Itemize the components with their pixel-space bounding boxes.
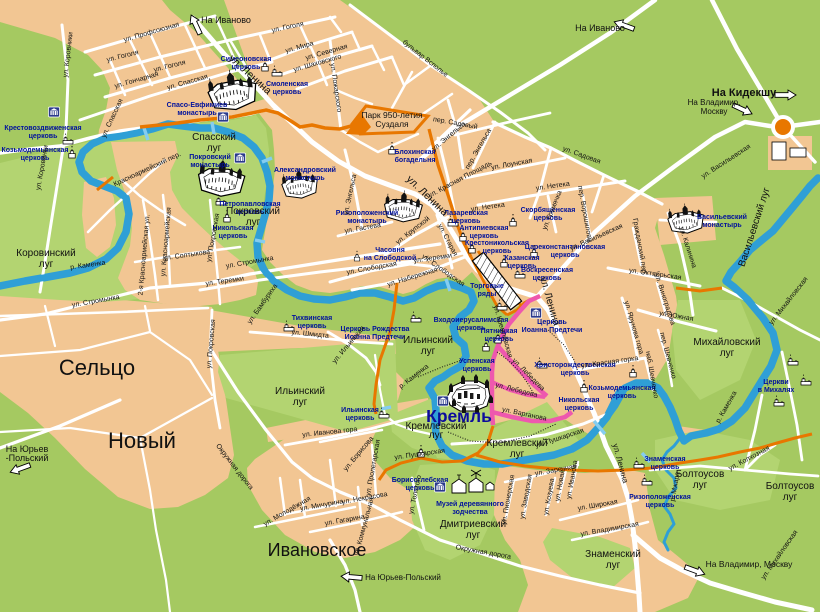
svg-text:Спасо-Евфимиев: Спасо-Евфимиев [167,102,228,109]
svg-text:церковь: церковь [463,366,492,373]
svg-text:Никольская: Никольская [559,397,600,404]
svg-text:монастырь: монастырь [702,222,742,229]
svg-text:луг: луг [429,430,444,441]
svg-text:луг: луг [466,530,481,541]
svg-text:луг: луг [783,492,798,503]
svg-text:луг: луг [246,217,261,228]
svg-text:луг: луг [720,348,735,359]
svg-text:церковь: церковь [219,233,248,240]
svg-text:луг: луг [207,143,222,154]
svg-text:Козьмодемьянская: Козьмодемьянская [589,385,656,392]
svg-text:Покровский: Покровский [226,206,280,217]
svg-text:Крестоникольская: Крестоникольская [465,240,529,247]
svg-text:церковь: церковь [470,233,499,240]
svg-text:Музей деревянного: Музей деревянного [436,500,504,508]
svg-text:луг: луг [693,480,708,491]
svg-text:Москву: Москву [701,107,728,116]
svg-text:монастырь: монастырь [177,110,217,117]
svg-text:Ильинский: Ильинский [403,335,453,346]
svg-text:На Владимир,: На Владимир, [688,98,741,107]
svg-text:Воскресенская: Воскресенская [521,267,573,274]
svg-text:церковь: церковь [298,323,327,330]
svg-text:церковь: церковь [452,218,481,225]
svg-text:Васильевский: Васильевский [697,213,747,221]
svg-text:монастырь: монастырь [285,175,325,182]
svg-text:Знаменский: Знаменский [585,549,641,560]
svg-text:Михайловский: Михайловский [693,337,760,348]
svg-text:церковь: церковь [551,252,580,259]
svg-text:Часовня: Часовня [375,247,405,254]
svg-text:Антипиевская: Антипиевская [460,225,509,232]
svg-text:Суздаля: Суздаля [375,119,409,129]
svg-text:Козьмодемьянская: Козьмодемьянская [2,147,69,154]
svg-text:Болтоусов: Болтоусов [676,469,725,480]
svg-text:церковь: церковь [561,370,590,377]
svg-text:луг: луг [39,259,54,270]
svg-text:На Кидекшу: На Кидекшу [712,87,777,99]
svg-text:Ильинская: Ильинская [341,407,379,414]
svg-text:Кремлевский: Кремлевский [487,438,548,449]
svg-text:Церкви: Церкви [763,379,788,386]
svg-text:Ивановское: Ивановское [268,540,367,560]
svg-text:Покровский: Покровский [189,153,231,161]
svg-text:Тихвинская: Тихвинская [292,315,332,322]
svg-text:Крестовоздвиженская: Крестовоздвиженская [4,125,81,132]
svg-text:Ризоположенская: Ризоположенская [629,494,691,501]
svg-text:луг: луг [606,560,621,571]
svg-text:На Юрьев-Польский: На Юрьев-Польский [365,573,441,582]
svg-text:Торговые: Торговые [470,283,504,290]
svg-text:На Владимир, Москву: На Владимир, Москву [706,559,794,569]
svg-text:Сельцо: Сельцо [59,355,135,380]
svg-text:Дмитриевский: Дмитриевский [440,519,506,530]
svg-text:церковь: церковь [565,405,594,412]
svg-text:монастырь: монастырь [190,162,230,169]
svg-text:На Иваново: На Иваново [575,23,625,33]
svg-text:Иоанна Предтечи: Иоанна Предтечи [522,327,583,334]
svg-text:луг: луг [293,397,308,408]
svg-text:луг: луг [510,449,525,460]
svg-text:луг: луг [421,346,436,357]
svg-text:Коровинский: Коровинский [16,248,75,259]
svg-text:церковь: церковь [608,393,637,400]
svg-text:ряды: ряды [478,291,497,298]
svg-text:церковь: церковь [29,133,58,140]
svg-text:церковь: церковь [483,248,512,255]
svg-text:На Иваново: На Иваново [201,15,251,25]
svg-text:Болтоусов: Болтоусов [766,481,815,492]
svg-text:церковь: церковь [273,89,302,96]
svg-text:Церковь Рождества: Церковь Рождества [341,326,410,333]
svg-text:Александровский: Александровский [274,166,336,174]
svg-text:Новый: Новый [108,428,176,453]
svg-text:Цареконстантиновская: Цареконстантиновская [525,244,606,251]
svg-text:Знаменская: Знаменская [644,456,685,463]
svg-text:церковь: церковь [646,502,675,509]
svg-text:Спасский: Спасский [192,132,236,143]
svg-text:Казанская: Казанская [504,255,539,262]
svg-text:Ильинский: Ильинский [275,386,325,397]
svg-text:-Польский: -Польский [6,453,49,463]
svg-text:богадельня: богадельня [395,156,436,164]
svg-text:Блохинская: Блохинская [394,149,435,156]
svg-text:в Михалях: в Михалях [758,387,795,394]
svg-text:церковь: церковь [346,415,375,422]
svg-text:Успенская: Успенская [459,358,495,365]
svg-text:зодчества: зодчества [452,509,487,516]
